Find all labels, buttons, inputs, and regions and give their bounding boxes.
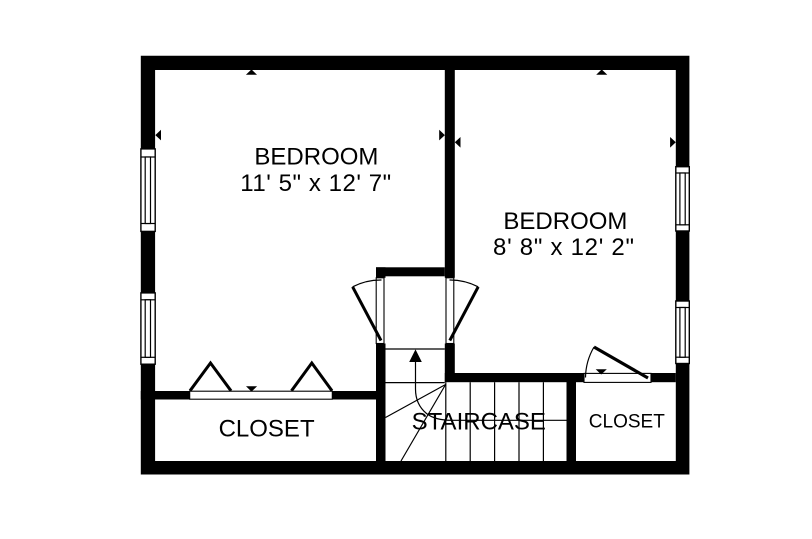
svg-text:CLOSET: CLOSET bbox=[219, 415, 315, 442]
svg-text:BEDROOM: BEDROOM bbox=[254, 144, 378, 171]
svg-text:CLOSET: CLOSET bbox=[589, 412, 665, 433]
svg-text:BEDROOM: BEDROOM bbox=[503, 208, 627, 235]
svg-text:11' 5" x 12' 7": 11' 5" x 12' 7" bbox=[240, 170, 391, 197]
svg-text:STAIRCASE: STAIRCASE bbox=[412, 409, 546, 436]
svg-text:8' 8" x 12' 2": 8' 8" x 12' 2" bbox=[493, 234, 635, 261]
